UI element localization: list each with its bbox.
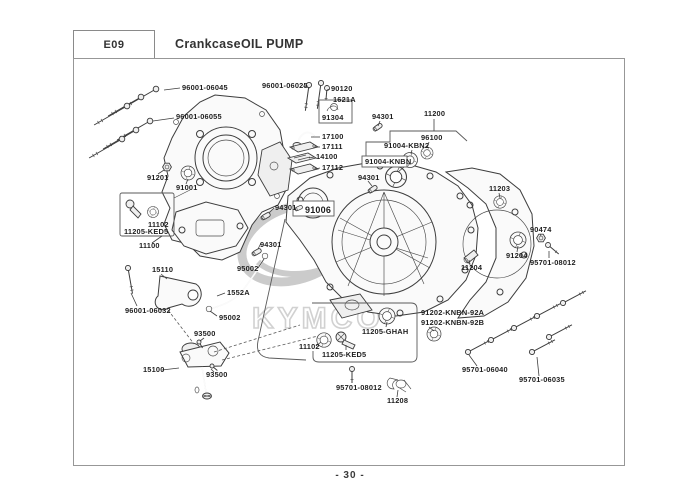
bearing-91202 <box>427 327 441 341</box>
part-label: 96001-06055 <box>176 112 222 121</box>
bearing-91001 <box>181 166 195 180</box>
section-code: E09 <box>103 39 124 51</box>
dowel-94301-d <box>251 248 262 257</box>
part-label: 14100 <box>316 152 338 161</box>
part-label: 11102 <box>299 342 320 351</box>
footer-page-number: - 30 - <box>0 470 700 481</box>
part-label: 91202-KNBN-92A <box>421 308 485 317</box>
part-label: 11203 <box>489 184 510 193</box>
oil-pump-parts <box>125 253 268 399</box>
part-label: 11204 <box>461 263 483 272</box>
bearing-91204 <box>510 232 526 248</box>
bolt-group-96001-06055 <box>88 117 154 160</box>
bearing-91004-knbn <box>386 167 407 188</box>
bolt-96001-06032 <box>125 265 135 294</box>
dowel-94301-a <box>372 123 383 132</box>
part-label: 96001-06025 <box>262 81 308 90</box>
part-label: 1621A <box>333 95 356 104</box>
part-label: 17111 <box>322 142 343 151</box>
part-label: 91004-KNBN <box>365 157 411 166</box>
part-label: 91004-KBN2 <box>384 141 429 150</box>
part-label: 17112 <box>322 163 343 172</box>
part-label: 94301 <box>275 203 297 212</box>
part-label: 93500 <box>194 329 216 338</box>
part-label: 15110 <box>152 265 173 274</box>
manual-page: E09 CrankcaseOIL PUMP <box>0 0 700 495</box>
diagram-frame: KYMCO <box>73 58 625 466</box>
part-label: 90474 <box>530 225 552 234</box>
section-code-box: E09 <box>73 30 155 59</box>
part-label: 1552A <box>227 288 250 297</box>
part-label: 95701-06040 <box>462 365 508 374</box>
part-label: 95002 <box>237 264 259 273</box>
part-label: 91204 <box>506 251 528 260</box>
part-label: 11208 <box>387 396 408 405</box>
part-label: 95002 <box>219 313 241 322</box>
part-label: 91001 <box>176 183 198 192</box>
part-label: 95701-06035 <box>519 375 565 384</box>
part-label: 96001-06045 <box>182 83 228 92</box>
part-label: 17100 <box>322 132 344 141</box>
part-label: 11205-KED5 <box>322 350 366 359</box>
part-label: 95701-08012 <box>530 258 576 267</box>
part-label: 11205-KED5 <box>124 227 168 236</box>
part-label: 95701-08012 <box>336 383 382 392</box>
part-label: 15100 <box>143 365 165 374</box>
part-label: 11200 <box>424 109 445 118</box>
part-label: 91202-KNBN-92B <box>421 318 484 327</box>
bushing-11205-ghah <box>379 308 395 324</box>
part-label: 94301 <box>372 112 394 121</box>
part-label: 91201 <box>147 173 169 182</box>
bolt-95701-08012-upper <box>544 241 560 255</box>
part-label: 11205-GHAH <box>362 327 408 336</box>
part-label: 11100 <box>139 241 160 250</box>
exploded-diagram: KYMCO <box>74 59 624 465</box>
part-label: 94301 <box>358 173 380 182</box>
part-label: 91006 <box>305 205 331 215</box>
part-label: 94301 <box>260 240 282 249</box>
page-title: CrankcaseOIL PUMP <box>175 37 304 51</box>
part-label: 93500 <box>206 370 228 379</box>
clamp-11208 <box>387 378 411 392</box>
bolt-chain-95701-06035 <box>528 322 573 355</box>
part-label: 91304 <box>322 113 344 122</box>
part-label: 90120 <box>331 84 353 93</box>
right-crankcase-half <box>286 162 478 318</box>
part-label: 96001-06032 <box>125 306 171 315</box>
nut-91201 <box>163 163 172 171</box>
